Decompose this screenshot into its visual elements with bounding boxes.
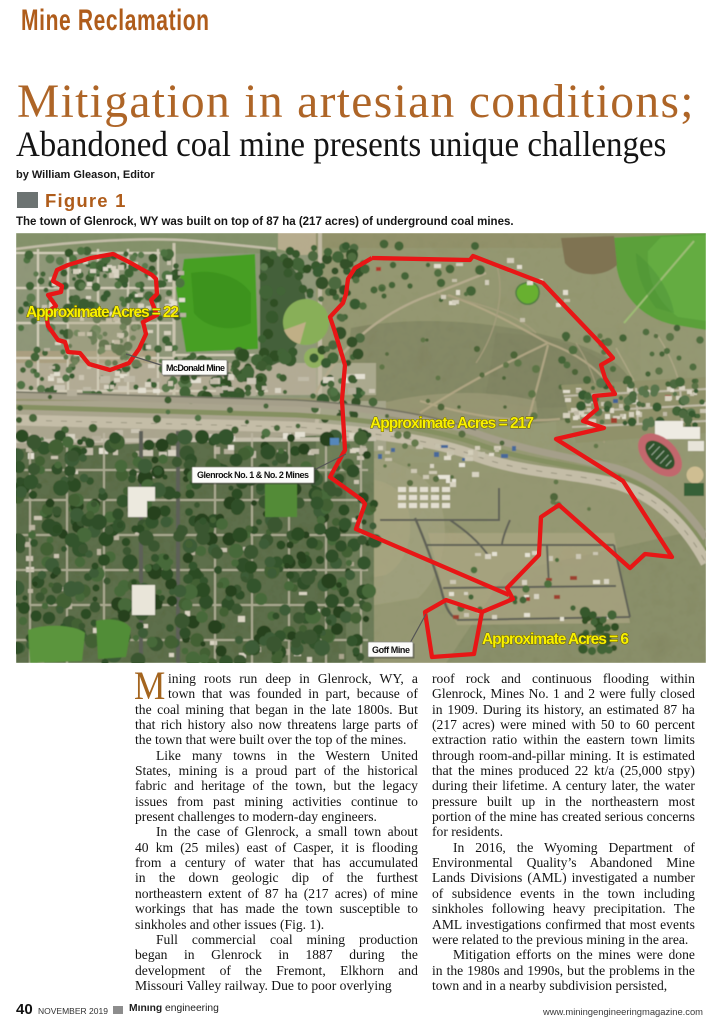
svg-text:Approximate Acres = 217: Approximate Acres = 217 bbox=[370, 415, 534, 432]
svg-text:Approximate Acres = 6: Approximate Acres = 6 bbox=[482, 631, 629, 648]
svg-text:Approximate Acres = 22: Approximate Acres = 22 bbox=[26, 304, 179, 321]
svg-text:McDonald Mine: McDonald Mine bbox=[166, 363, 225, 373]
svg-text:Glenrock No. 1 & No. 2 Mines: Glenrock No. 1 & No. 2 Mines bbox=[197, 470, 309, 480]
svg-text:Goff Mine: Goff Mine bbox=[372, 645, 410, 655]
